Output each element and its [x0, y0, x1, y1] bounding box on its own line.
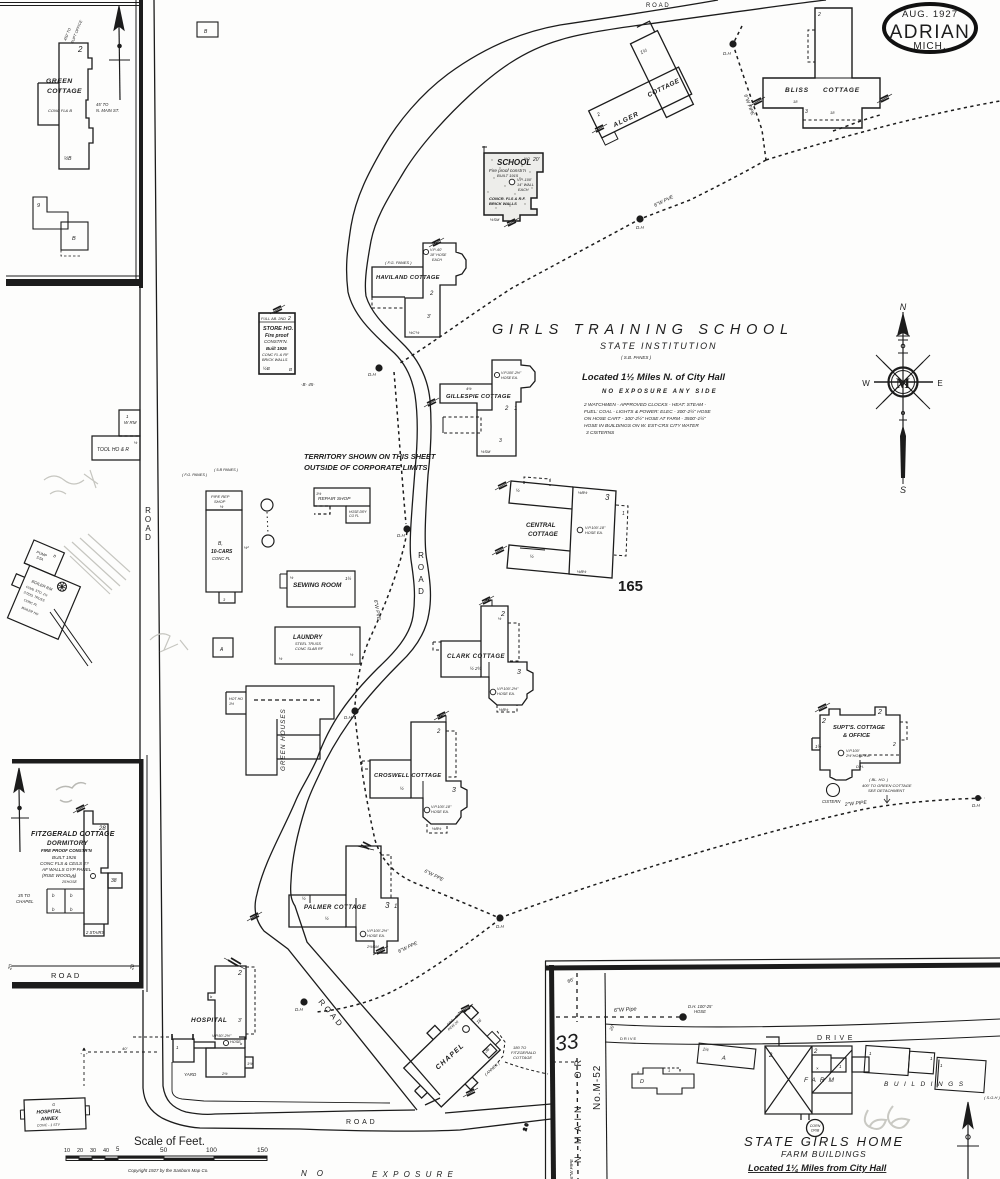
svg-text:14" WALL: 14" WALL — [517, 183, 534, 187]
svg-text:1: 1 — [514, 406, 517, 412]
svg-text:½SM: ½SM — [481, 449, 491, 454]
svg-text:D.H: D.H — [636, 225, 645, 230]
svg-text:ADRIAN: ADRIAN — [890, 22, 971, 43]
svg-text:20: 20 — [77, 1148, 83, 1154]
svg-text:1½: 1½ — [247, 1061, 253, 1066]
svg-text:BRICK WALLS: BRICK WALLS — [489, 201, 517, 206]
svg-text:100: 100 — [206, 1147, 217, 1154]
svg-text:No.M-52: No.M-52 — [592, 1065, 603, 1110]
svg-text:½: ½ — [530, 553, 534, 559]
svg-text:9: 9 — [37, 203, 40, 209]
svg-text:& OFFICE: & OFFICE — [843, 733, 871, 739]
svg-text:G: G — [52, 1103, 55, 1107]
svg-text:COTTAGE: COTTAGE — [528, 531, 559, 538]
svg-text:2: 2 — [817, 12, 821, 18]
svg-text:HOSPITAL: HOSPITAL — [191, 1017, 227, 1024]
svg-text:HOSE: HOSE — [694, 1009, 706, 1014]
svg-text:V.P.100'-2½": V.P.100'-2½" — [497, 687, 519, 691]
svg-text:V.P.100'-18": V.P.100'-18" — [585, 526, 606, 530]
svg-text:2½SM: 2½SM — [366, 944, 379, 949]
svg-text:AUG. 1927: AUG. 1927 — [902, 9, 958, 20]
svg-text:V.P.-100': V.P.-100' — [517, 178, 532, 182]
svg-text:150: 150 — [257, 1147, 268, 1154]
svg-text:6"W PIPE: 6"W PIPE — [569, 1158, 574, 1179]
svg-text:D: D — [640, 1079, 644, 1085]
svg-text:V.P.: V.P. — [70, 875, 76, 879]
svg-text:18: 18 — [830, 110, 835, 115]
svg-text:( BL. HO. ): ( BL. HO. ) — [869, 777, 889, 782]
svg-text:B: B — [289, 367, 292, 372]
svg-text:3: 3 — [452, 787, 456, 794]
svg-text:3: 3 — [517, 669, 521, 676]
svg-text:R: R — [145, 506, 151, 515]
svg-text:FARM BUILDINGS: FARM BUILDINGS — [781, 1149, 867, 1159]
svg-text:O: O — [145, 515, 151, 524]
svg-text:2: 2 — [877, 709, 882, 716]
svg-text:NO EXPOSURE ANY SIDE: NO EXPOSURE ANY SIDE — [602, 389, 718, 395]
svg-text:HOSE EA.: HOSE EA. — [367, 934, 385, 938]
svg-text:R: R — [418, 551, 424, 560]
svg-text:Scale of Feet.: Scale of Feet. — [134, 1136, 205, 1148]
svg-text:V.P.100'-2½": V.P.100'-2½" — [501, 371, 522, 375]
svg-text:FULL AB. 2ND: FULL AB. 2ND — [261, 317, 286, 321]
svg-text:N. MAIN ST.: N. MAIN ST. — [96, 108, 119, 113]
svg-text:1: 1 — [394, 904, 397, 910]
svg-text:( F.G. PANES ): ( F.G. PANES ) — [182, 473, 208, 477]
svg-text:DRIVE: DRIVE — [620, 1036, 637, 1041]
svg-text:AF WALLS GYP PANEL: AF WALLS GYP PANEL — [41, 867, 92, 872]
svg-text:A: A — [720, 1055, 726, 1061]
svg-text:10-CARS: 10-CARS — [211, 549, 233, 555]
svg-text:CLARK COTTAGE: CLARK COTTAGE — [447, 654, 506, 660]
svg-text:O: O — [418, 563, 424, 572]
svg-text:DORMITORY: DORMITORY — [47, 840, 88, 847]
svg-text:Copyright 1927 by the Sanborn: Copyright 1927 by the Sanborn Map Co. — [128, 1168, 209, 1173]
svg-text:CENTRAL: CENTRAL — [526, 522, 556, 529]
svg-text:EACH: EACH — [518, 188, 529, 192]
svg-text:1½: 1½ — [702, 1046, 709, 1053]
svg-text:COTTAGE: COTTAGE — [513, 1055, 532, 1060]
svg-text:D.H: D.H — [723, 51, 732, 56]
svg-text:½: ½ — [400, 785, 404, 791]
svg-text:W: W — [862, 379, 870, 388]
svg-text:10: 10 — [64, 1148, 70, 1154]
svg-text:45' TO: 45' TO — [96, 102, 109, 107]
svg-text:D: D — [145, 533, 151, 542]
svg-text:EACH: EACH — [432, 258, 442, 262]
svg-text:CISTERN: CISTERN — [822, 799, 841, 804]
svg-text:HAVILAND COTTAGE: HAVILAND COTTAGE — [376, 275, 441, 281]
svg-text:2: 2 — [504, 406, 509, 412]
svg-text:CONSTR'N.: CONSTR'N. — [264, 339, 288, 344]
svg-text:2: 2 — [77, 45, 83, 54]
svg-text:HOSE EA.: HOSE EA. — [585, 531, 603, 535]
svg-text:35 TO: 35 TO — [18, 893, 31, 898]
svg-text:1½: 1½ — [229, 702, 234, 706]
svg-text:CONC - 1 STY: CONC - 1 STY — [37, 1123, 61, 1128]
svg-text:CONC FL & RF: CONC FL & RF — [262, 353, 289, 357]
svg-text:SEWING ROOM: SEWING ROOM — [293, 582, 342, 589]
svg-text:1½: 1½ — [316, 492, 322, 496]
svg-text:CO FL: CO FL — [349, 514, 359, 518]
svg-text:HOSE EA.: HOSE EA. — [431, 810, 449, 814]
svg-text:½: ½ — [302, 895, 306, 901]
svg-text:HOSE EA.: HOSE EA. — [501, 376, 518, 380]
svg-text:2: 2 — [237, 970, 242, 977]
svg-text:D.H: D.H — [295, 1007, 304, 1012]
svg-text:FITZGERALD COTTAGE: FITZGERALD COTTAGE — [31, 831, 115, 838]
svg-text:DRIVE: DRIVE — [817, 1035, 856, 1042]
svg-text:FIRE PROOF CONSTR'N: FIRE PROOF CONSTR'N — [41, 848, 93, 853]
svg-text:HOSPITAL: HOSPITAL — [36, 1109, 61, 1116]
svg-text:½: ½ — [516, 487, 520, 493]
svg-text:4½: 4½ — [466, 386, 472, 391]
svg-text:EXPOSURE: EXPOSURE — [372, 1170, 458, 1179]
svg-text:½B½: ½B½ — [499, 707, 509, 712]
svg-text:OUTSIDE OF CORPORATE LIMITS: OUTSIDE OF CORPORATE LIMITS — [304, 463, 427, 472]
svg-text:30: 30 — [90, 1148, 96, 1154]
svg-text:½: ½ — [325, 915, 329, 921]
svg-text:COTTAGE: COTTAGE — [823, 87, 860, 94]
svg-text:GILLESPIE COTTAGE: GILLESPIE COTTAGE — [446, 394, 512, 400]
svg-text:½SM: ½SM — [490, 217, 500, 222]
svg-text:2: 2 — [429, 291, 434, 297]
svg-text:SUPT'S. COTTAGE: SUPT'S. COTTAGE — [833, 725, 886, 731]
svg-text:CHAPEL: CHAPEL — [16, 899, 34, 904]
svg-text:GREEN: GREEN — [46, 78, 73, 85]
svg-text:D.H: D.H — [972, 803, 981, 808]
svg-text:165: 165 — [618, 578, 643, 595]
svg-text:D.H: D.H — [368, 372, 377, 377]
svg-text:COTTAGE: COTTAGE — [47, 88, 82, 95]
svg-text:STEEL TRUSS: STEEL TRUSS — [295, 642, 321, 646]
svg-text:LAUNDRY: LAUNDRY — [293, 635, 323, 641]
svg-text:GREEN HOUSES: GREEN HOUSES — [280, 708, 287, 771]
svg-text:20': 20' — [532, 157, 541, 163]
svg-text:1: 1 — [668, 1068, 670, 1073]
svg-text:NO: NO — [524, 156, 530, 161]
svg-text:25'HOSE: 25'HOSE — [61, 880, 77, 884]
svg-text:D.H: D.H — [496, 924, 505, 929]
svg-text:V.P.50'-2½": V.P.50'-2½" — [212, 1034, 232, 1038]
svg-text:N: N — [900, 302, 907, 312]
svg-text:½B½: ½B½ — [432, 826, 442, 831]
svg-text:B: B — [72, 236, 76, 242]
svg-text:STATE INSTITUTION: STATE INSTITUTION — [600, 341, 717, 351]
svg-text:HOT HO: HOT HO — [229, 697, 243, 701]
svg-text:½ 2½: ½ 2½ — [470, 665, 482, 671]
svg-text:BRICK WALLS: BRICK WALLS — [262, 358, 288, 362]
svg-text:( 5.B PANES ): ( 5.B PANES ) — [214, 468, 239, 472]
svg-text:ROAD: ROAD — [51, 971, 81, 980]
svg-text:FARM: FARM — [804, 1077, 838, 1084]
svg-text:2½: 2½ — [221, 1071, 228, 1076]
svg-text:½B½: ½B½ — [578, 490, 588, 495]
svg-text:1½: 1½ — [815, 743, 822, 749]
svg-text:V.P.100'-18": V.P.100'-18" — [431, 805, 452, 809]
svg-text:3: 3 — [805, 109, 808, 115]
svg-text:½²: ½² — [244, 545, 249, 550]
svg-text:2: 2 — [892, 742, 896, 748]
svg-text:V.P.100': V.P.100' — [846, 749, 860, 753]
svg-text:S: S — [900, 485, 906, 495]
svg-text:2½"HOSE EA: 2½"HOSE EA — [845, 754, 870, 758]
svg-text:D.H: D.H — [344, 715, 353, 720]
svg-text:CONC FL: CONC FL — [212, 556, 231, 561]
svg-text:STORE HO.: STORE HO. — [263, 326, 294, 332]
svg-text:YARD: YARD — [184, 1072, 197, 1077]
svg-text:A: A — [219, 647, 224, 653]
svg-text:M: M — [896, 376, 910, 392]
svg-text:Located 1½ Miles N. of City Ha: Located 1½ Miles N. of City Hall — [582, 372, 725, 383]
svg-text:D: D — [418, 587, 424, 596]
svg-text:50: 50 — [160, 1147, 168, 1154]
svg-text:Located 1¼ Miles from City Hal: Located 1¼ Miles from City Hall — [748, 1163, 887, 1173]
svg-text:PALMER COTTAGE: PALMER COTTAGE — [304, 905, 367, 911]
svg-text:CRIB: CRIB — [811, 1129, 820, 1133]
svg-text:2: 2 — [436, 729, 441, 735]
svg-text:D.H.: D.H. — [856, 764, 864, 769]
svg-text:W RM: W RM — [124, 420, 137, 425]
svg-text:BUILDINGS: BUILDINGS — [884, 1081, 969, 1088]
svg-text:½C'½: ½C'½ — [409, 330, 420, 335]
svg-text:( S.G.H ): ( S.G.H ) — [984, 1095, 1000, 1100]
svg-text:2: 2 — [813, 1049, 818, 1055]
svg-text:A: A — [145, 524, 151, 533]
svg-text:FUEL: COAL - LIGHTS & POWER: E: FUEL: COAL - LIGHTS & POWER: ELEC - 300'… — [584, 408, 712, 415]
svg-text:SEE DETACHMENT: SEE DETACHMENT — [868, 788, 905, 793]
svg-text:ON HOSE CART - 100'-2½" HOSE A: ON HOSE CART - 100'-2½" HOSE AT FARM - 3… — [584, 415, 706, 422]
svg-text:A: A — [418, 575, 424, 584]
svg-text:ROAD: ROAD — [646, 3, 671, 9]
svg-text:2 WATCHMEN - APPROVED CLOCKS -: 2 WATCHMEN - APPROVED CLOCKS - HEAT: STE… — [583, 402, 706, 408]
svg-text:×: × — [816, 1066, 819, 1071]
svg-text:CORN: CORN — [810, 1124, 821, 1128]
svg-text:TOOL HO & R: TOOL HO & R — [97, 447, 129, 453]
svg-text:CONC FLS & CEILS 2?: CONC FLS & CEILS 2? — [40, 861, 89, 866]
svg-text:HOSE IN BUILDINGS ON W. EST-CR: HOSE IN BUILDINGS ON W. EST-CRS CITY WAT… — [584, 423, 699, 429]
svg-text:NO: NO — [301, 1169, 333, 1178]
svg-text:½B: ½B — [263, 365, 270, 371]
svg-text:BUILT 1926: BUILT 1926 — [52, 855, 77, 860]
svg-text:MICH.: MICH. — [913, 41, 946, 52]
svg-text:ROAD: ROAD — [346, 1119, 377, 1126]
svg-text:3: 3 — [385, 901, 390, 910]
svg-text:V.P.-60': V.P.-60' — [430, 248, 442, 252]
svg-text:BUILT 1915: BUILT 1915 — [497, 173, 519, 178]
svg-text:( S.B. PANES ): ( S.B. PANES ) — [621, 355, 652, 360]
svg-text:3 CISTERNS: 3 CISTERNS — [586, 430, 615, 436]
svg-text:N.MAIN - OR: N.MAIN - OR — [573, 1055, 583, 1163]
svg-text:HOSE EA.: HOSE EA. — [497, 692, 515, 696]
svg-text:2: 2 — [287, 316, 291, 322]
svg-text:CONC SLAB RF: CONC SLAB RF — [295, 647, 324, 651]
svg-text:3: 3 — [605, 493, 610, 502]
svg-text:V.P.100'-2½": V.P.100'-2½" — [367, 929, 389, 933]
svg-text:½B½: ½B½ — [577, 569, 587, 574]
svg-text:ANNEX: ANNEX — [40, 1116, 59, 1123]
svg-text:Built 1926: Built 1926 — [266, 346, 287, 351]
svg-text:18" HOSE: 18" HOSE — [430, 253, 447, 257]
svg-text:18: 18 — [793, 99, 798, 104]
svg-text:CROSWELL COTTAGE: CROSWELL COTTAGE — [374, 773, 442, 779]
svg-text:3: 3 — [499, 438, 502, 444]
svg-text:( F.G. PANES ): ( F.G. PANES ) — [385, 260, 412, 265]
svg-text:GIRLS TRAINING SCHOOL: GIRLS TRAINING SCHOOL — [492, 322, 794, 338]
svg-text:2 STAIRS: 2 STAIRS — [85, 930, 105, 935]
svg-text:E: E — [937, 379, 942, 388]
svg-text:D.H: D.H — [397, 533, 406, 538]
svg-text:REPAIR SHOP: REPAIR SHOP — [318, 496, 351, 502]
svg-text:40: 40 — [103, 1148, 109, 1154]
svg-text:40': 40' — [122, 1046, 127, 1051]
svg-text:TERRITORY SHOWN ON THIS SHEE: TERRITORY SHOWN ON THIS SHEET — [304, 452, 437, 461]
svg-text:2: 2 — [768, 1053, 773, 1059]
svg-text:BLISS: BLISS — [785, 87, 809, 94]
svg-text:33: 33 — [553, 1030, 580, 1056]
svg-text:1½: 1½ — [345, 575, 352, 581]
svg-text:B,: B, — [218, 541, 223, 547]
svg-text:STATE GIRLS HOME: STATE GIRLS HOME — [744, 1134, 904, 1149]
svg-text:2: 2 — [821, 718, 826, 725]
svg-text:38: 38 — [111, 878, 117, 884]
svg-text:HOSE: HOSE — [230, 1040, 241, 1044]
svg-text:CONC FL& B: CONC FL& B — [48, 108, 72, 113]
svg-text:·B· 45·: ·B· 45· — [301, 382, 315, 387]
svg-text:1: 1 — [622, 511, 625, 517]
svg-text:½B: ½B — [64, 155, 72, 162]
